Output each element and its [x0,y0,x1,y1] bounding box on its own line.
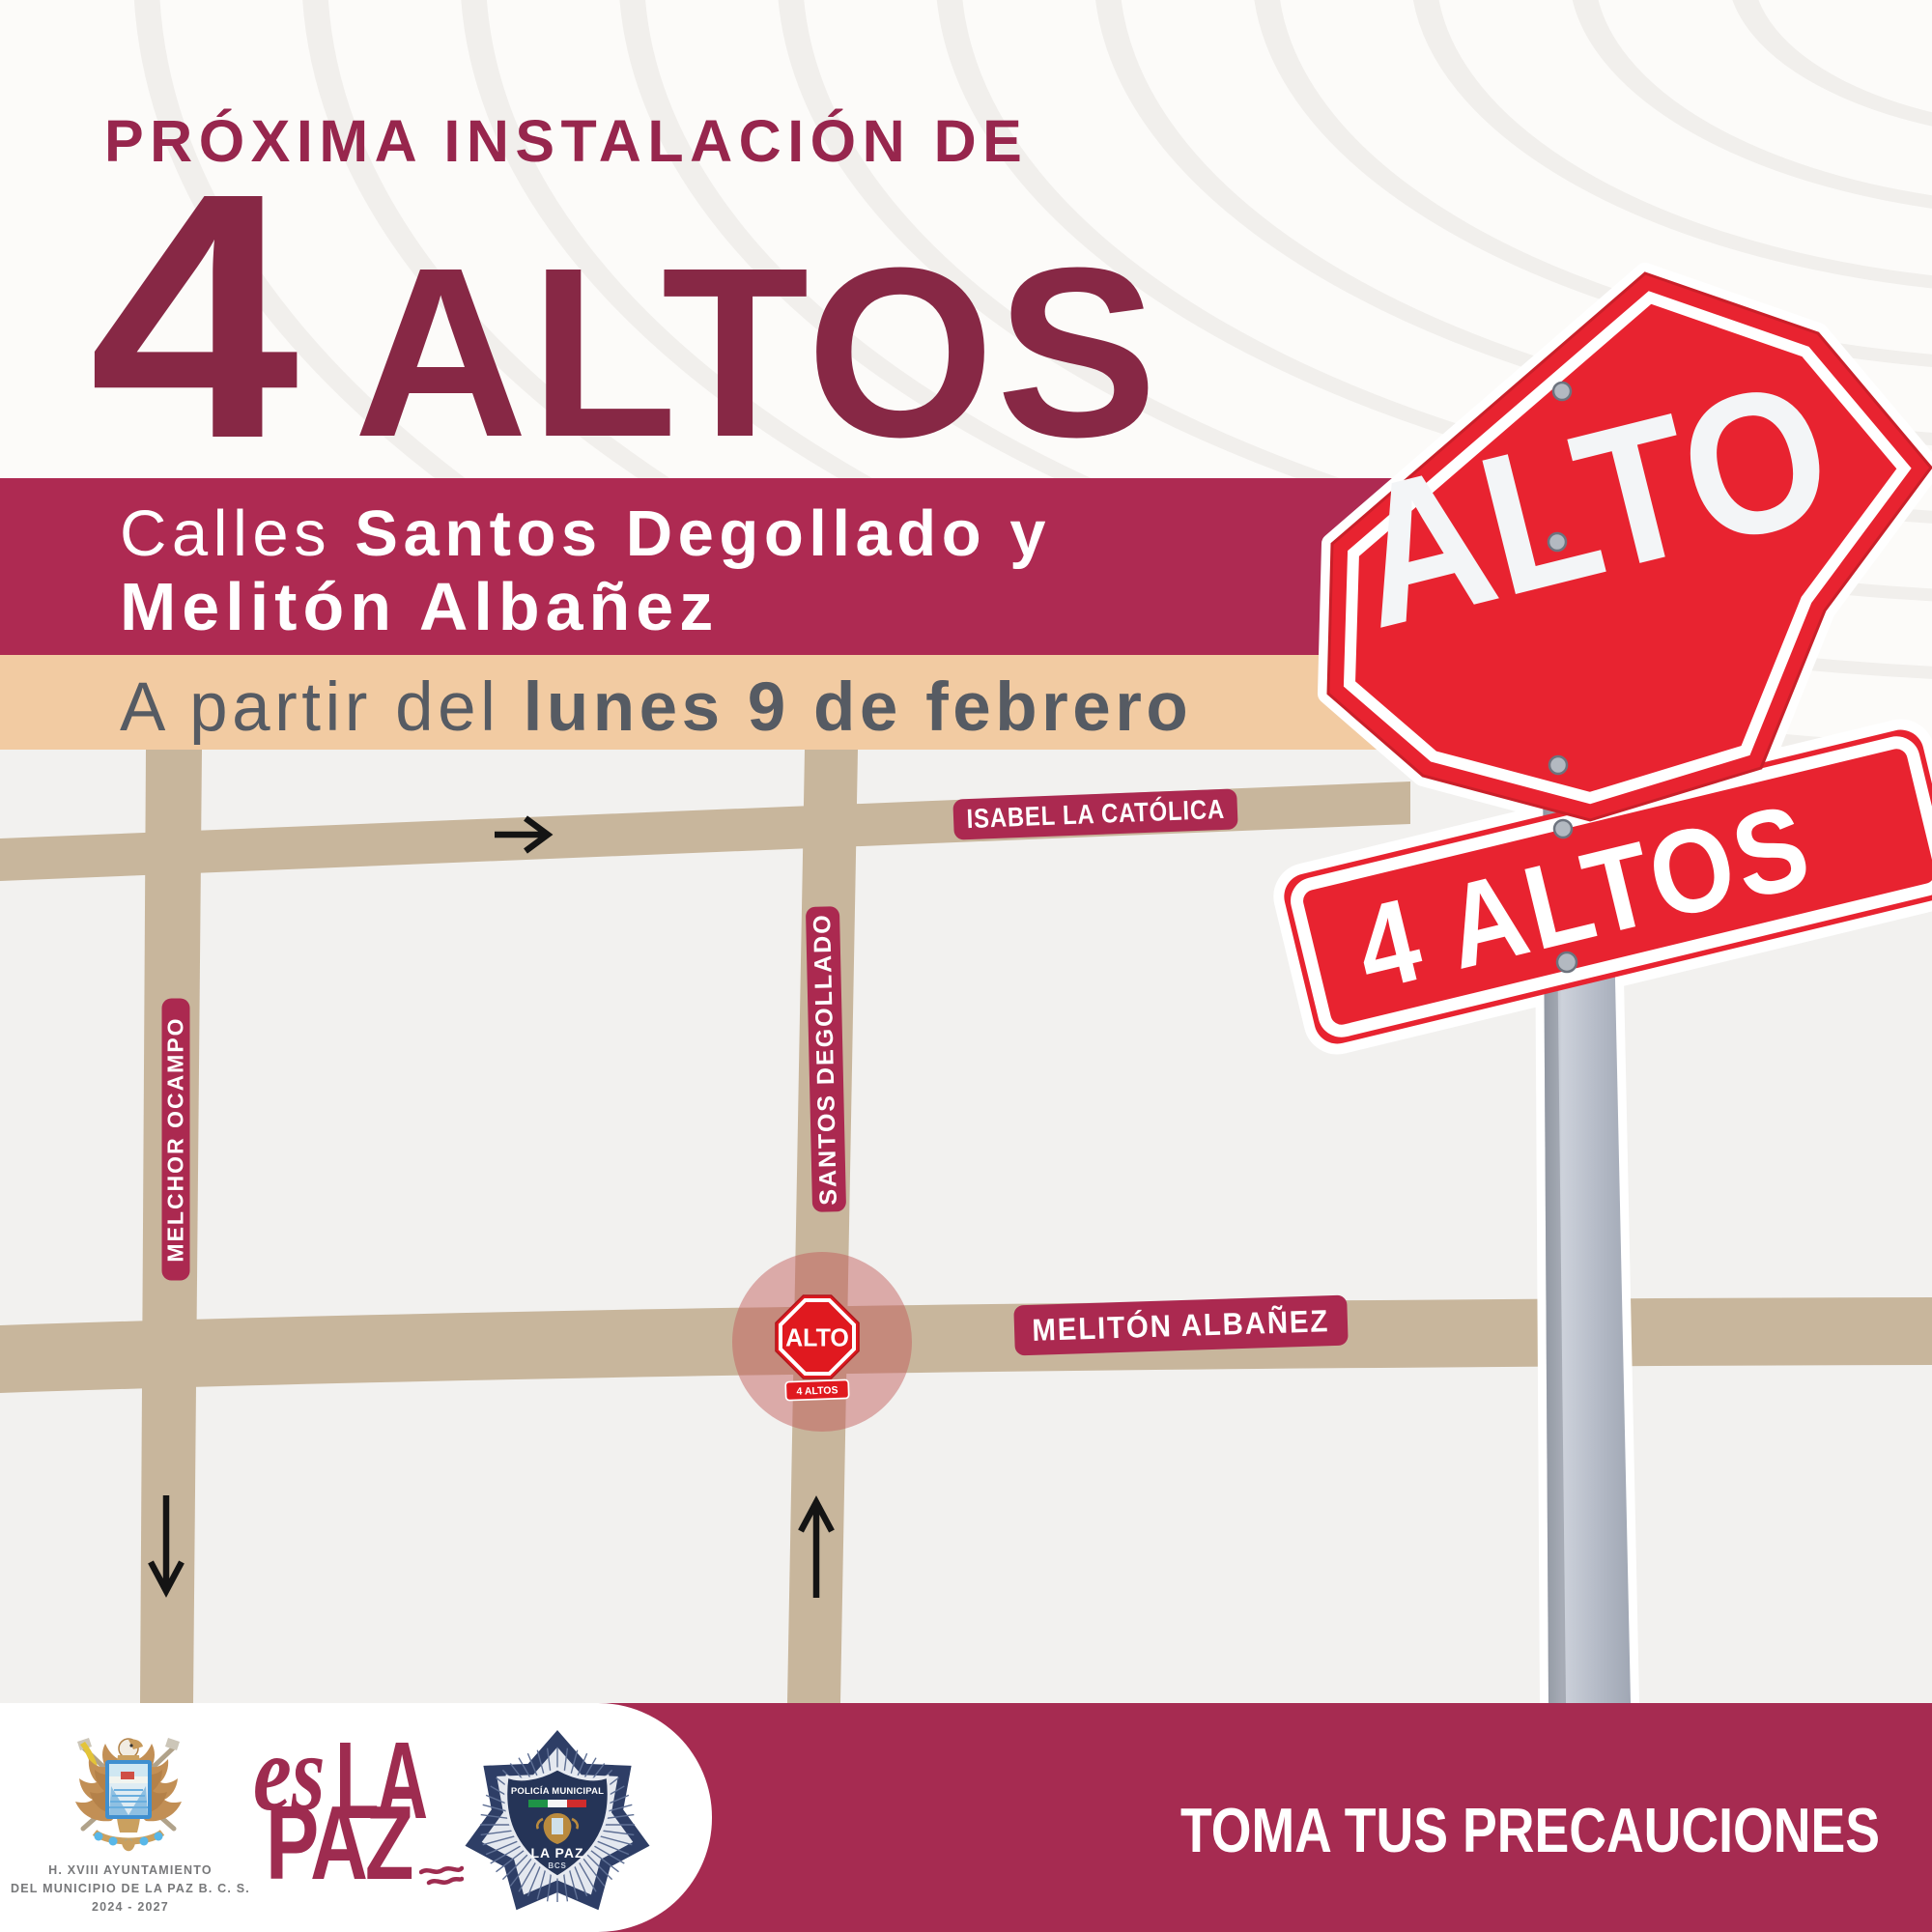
svg-text:BCS: BCS [548,1861,566,1870]
svg-text:LA PAZ: LA PAZ [531,1845,584,1861]
svg-text:POLICÍA MUNICIPAL: POLICÍA MUNICIPAL [511,1786,604,1797]
